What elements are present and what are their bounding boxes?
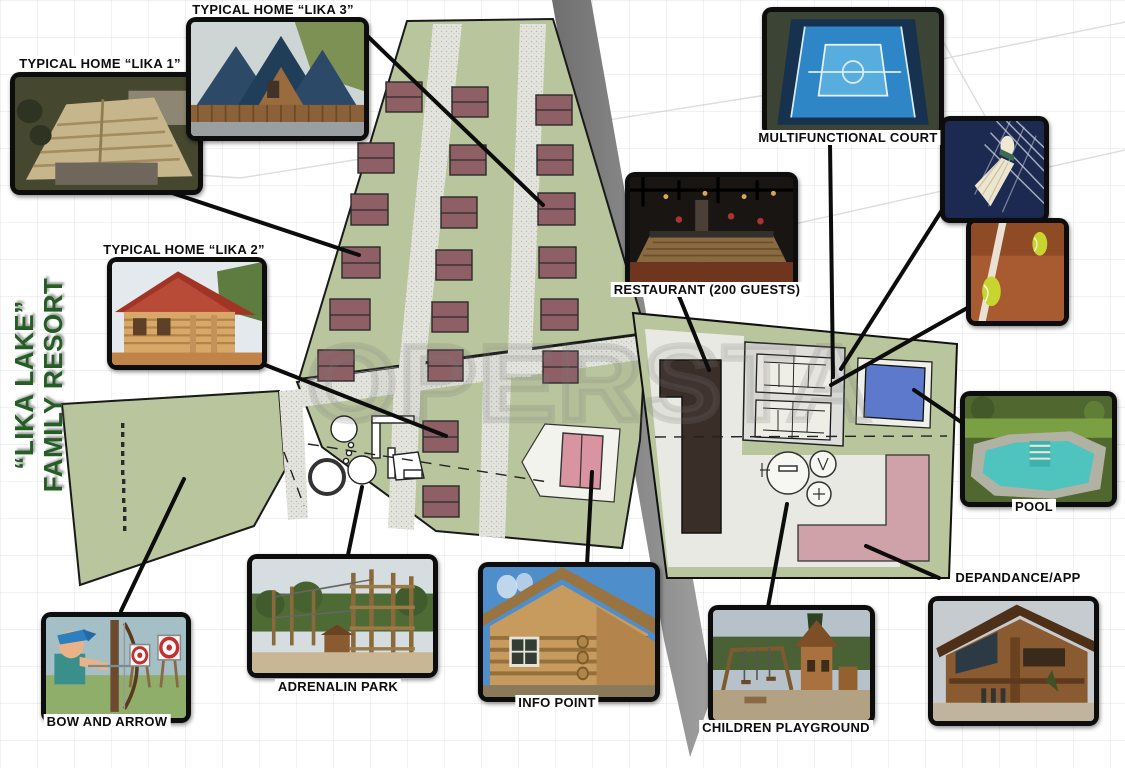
photo-restaurant	[625, 172, 798, 290]
photo-typical-home-lika-2	[107, 257, 267, 370]
photo-pool	[960, 391, 1117, 507]
typical-home-lika-2-photo	[112, 262, 262, 365]
resort-masterplan-poster: OPERSTA TYPICAL HOME “LIKA 1”	[0, 0, 1125, 768]
bow-and-arrow-photo	[46, 617, 186, 718]
photo-bow-and-arrow	[41, 612, 191, 723]
photo-depandance	[928, 596, 1099, 726]
photo-adrenalin-park	[247, 554, 438, 678]
typical-home-lika-1-photo	[15, 77, 198, 190]
label-restaurant: RESTAURANT (200 GUESTS)	[611, 282, 804, 297]
typical-home-lika-3-photo	[191, 22, 364, 136]
photo-typical-home-lika-3	[186, 17, 369, 141]
photo-badminton	[940, 116, 1049, 223]
label-info-point: INFO POINT	[515, 695, 598, 710]
label-bow-and-arrow: BOW AND ARROW	[44, 714, 171, 729]
photo-info-point	[478, 562, 660, 702]
label-multifunctional-court: MULTIFUNCTIONAL COURT	[755, 130, 940, 145]
photo-children-playground	[708, 605, 875, 725]
resort-title-line2: FAMILY RESORT	[39, 276, 68, 494]
multifunctional-court-photo	[767, 12, 939, 132]
info-point-photo	[483, 567, 655, 697]
resort-title-line1: “LIKA LAKE”	[10, 276, 39, 494]
badminton-shuttlecock-photo	[945, 121, 1044, 218]
label-typical-home-lika-3: TYPICAL HOME “LIKA 3”	[189, 2, 357, 17]
children-playground-photo	[713, 610, 870, 720]
label-typical-home-lika-2: TYPICAL HOME “LIKA 2”	[100, 242, 268, 257]
label-pool: POOL	[1012, 499, 1056, 514]
label-adrenalin-park: ADRENALIN PARK	[275, 679, 401, 694]
label-children-playground: CHILDREN PLAYGROUND	[699, 720, 873, 735]
depandance-photo	[933, 601, 1094, 721]
watermark: OPERSTA	[190, 321, 990, 444]
photo-tennis	[966, 218, 1069, 326]
resort-title: “LIKA LAKE” FAMILY RESORT	[10, 276, 76, 494]
photo-typical-home-lika-1	[10, 72, 203, 195]
adrenalin-park-photo	[252, 559, 433, 673]
restaurant-photo	[630, 177, 793, 285]
label-typical-home-lika-1: TYPICAL HOME “LIKA 1”	[16, 56, 184, 71]
label-depandance: DEPANDANCE/APP	[952, 570, 1083, 585]
tennis-clay-court-photo	[971, 223, 1064, 321]
photo-multifunctional-court	[762, 7, 944, 137]
pool-photo	[965, 396, 1112, 502]
